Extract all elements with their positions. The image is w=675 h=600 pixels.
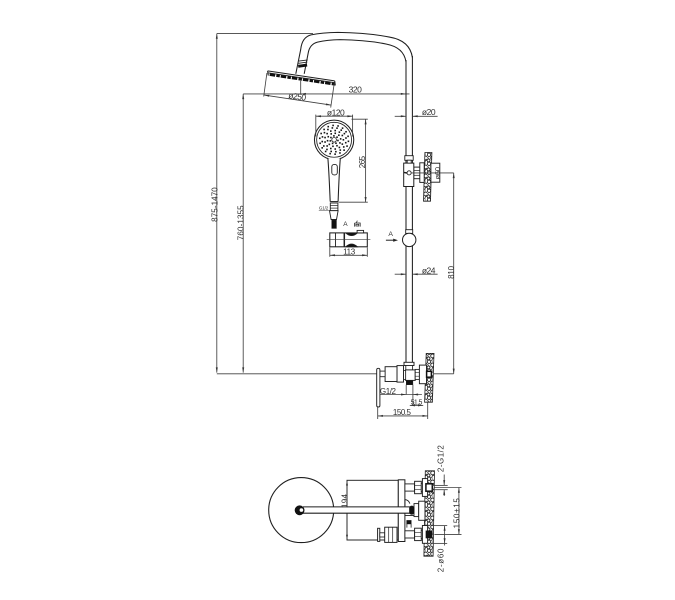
svg-text:G1/2: G1/2 — [380, 387, 397, 396]
svg-text:ø120: ø120 — [327, 107, 345, 117]
svg-text:150.5: 150.5 — [393, 408, 412, 417]
svg-text:320: 320 — [349, 85, 362, 95]
svg-text:ø24: ø24 — [422, 266, 436, 276]
svg-text:ø20: ø20 — [422, 107, 436, 117]
svg-text:150±15: 150±15 — [452, 497, 461, 528]
svg-text:G1/2: G1/2 — [319, 206, 329, 211]
svg-text:113: 113 — [343, 248, 356, 257]
svg-text:2-ø60: 2-ø60 — [437, 548, 446, 572]
svg-text:760-1355: 760-1355 — [237, 205, 246, 240]
svg-text:ø60: ø60 — [433, 167, 442, 179]
svg-text:2-G1/2: 2-G1/2 — [437, 445, 446, 473]
svg-text:194: 194 — [340, 494, 349, 508]
svg-text:875-1470: 875-1470 — [210, 187, 219, 222]
svg-text:810: 810 — [447, 265, 456, 278]
svg-text:51.5: 51.5 — [411, 400, 423, 407]
svg-text:265: 265 — [358, 155, 367, 168]
